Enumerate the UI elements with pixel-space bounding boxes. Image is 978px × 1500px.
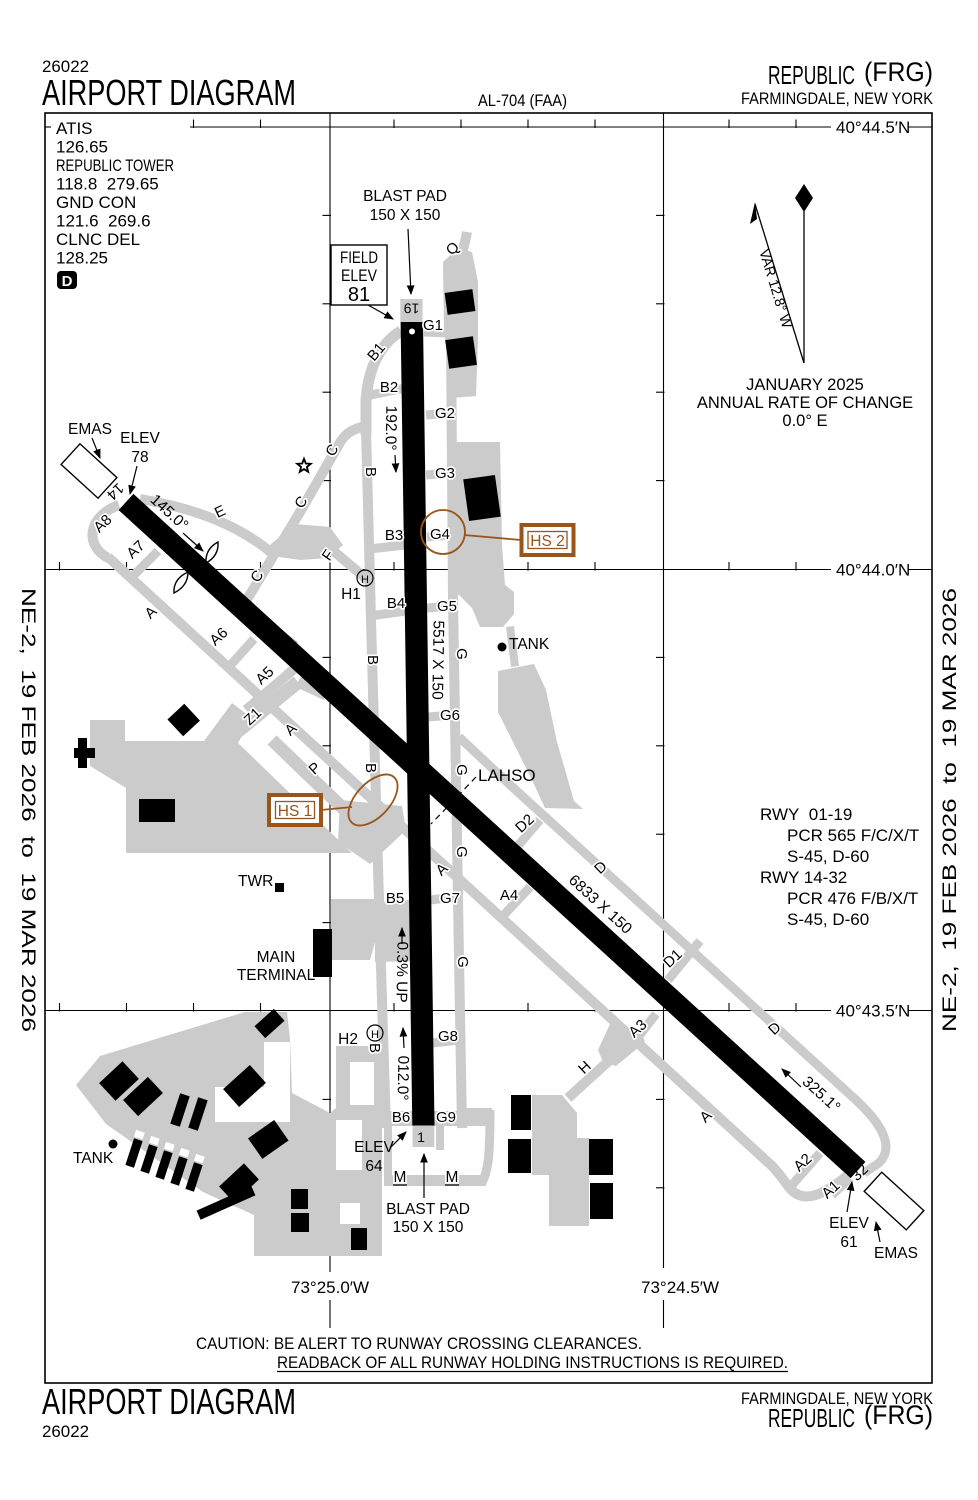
svg-text:H1: H1 <box>341 586 361 603</box>
svg-text:G: G <box>453 648 470 660</box>
svg-text:0.0° E: 0.0° E <box>782 412 827 430</box>
svg-text:G1: G1 <box>423 317 443 334</box>
svg-text:H: H <box>361 574 369 586</box>
svg-text:B: B <box>364 655 381 665</box>
svg-text:73°25.0′W: 73°25.0′W <box>291 1278 369 1297</box>
svg-text:B4: B4 <box>387 595 405 612</box>
svg-text:B: B <box>362 467 379 477</box>
svg-text:NE-2, 19 FEB 2026 to 19 MAR: NE-2, 19 FEB 2026 to 19 MAR 2026 <box>940 588 961 1032</box>
svg-text:150 X 150: 150 X 150 <box>370 207 441 224</box>
svg-text:ATIS: ATIS <box>56 119 93 138</box>
svg-text:G6: G6 <box>440 707 460 724</box>
svg-text:ELEV: ELEV <box>829 1215 869 1232</box>
svg-text:61: 61 <box>840 1234 857 1251</box>
svg-text:ANNUAL RATE OF CHANGE: ANNUAL RATE OF CHANGE <box>697 394 913 412</box>
svg-text:B2: B2 <box>380 379 398 396</box>
svg-text:NE-2, 19 FEB 2026 to 19 MAR: NE-2, 19 FEB 2026 to 19 MAR 2026 <box>17 588 38 1032</box>
svg-text:B3: B3 <box>385 527 403 544</box>
svg-text:(FRG): (FRG) <box>864 57 933 87</box>
svg-text:121.6 269.6: 121.6 269.6 <box>56 212 151 231</box>
svg-text:HS 1: HS 1 <box>278 803 312 820</box>
svg-text:G: G <box>453 846 470 858</box>
svg-text:REPUBLIC: REPUBLIC <box>768 1403 855 1433</box>
svg-text:B5: B5 <box>386 890 404 907</box>
svg-text:G4: G4 <box>430 526 450 543</box>
svg-text:FARMINGDALE, NEW YORK: FARMINGDALE, NEW YORK <box>741 89 934 108</box>
svg-text:A4: A4 <box>500 887 518 904</box>
svg-text:EMAS: EMAS <box>68 421 112 438</box>
svg-text:192.0°: 192.0° <box>382 405 400 450</box>
svg-text:40°43.5′N: 40°43.5′N <box>836 1002 910 1021</box>
svg-text:B: B <box>366 1043 383 1053</box>
svg-text:1: 1 <box>417 1129 425 1145</box>
svg-text:AL-704 (FAA): AL-704 (FAA) <box>478 91 567 110</box>
svg-text:H: H <box>371 1029 379 1041</box>
svg-text:READBACK OF ALL RUNWAY HOLDING: READBACK OF ALL RUNWAY HOLDING INSTRUCTI… <box>277 1353 788 1372</box>
svg-text:BLAST PAD: BLAST PAD <box>386 1201 470 1218</box>
svg-text:G7: G7 <box>440 890 460 907</box>
svg-text:G: G <box>453 764 470 776</box>
svg-text:ELEV: ELEV <box>120 430 160 447</box>
svg-text:LAHSO: LAHSO <box>478 766 536 785</box>
svg-text:CLNC DEL: CLNC DEL <box>56 230 140 249</box>
svg-text:TANK: TANK <box>73 1150 114 1167</box>
svg-text:S-45, D-60: S-45, D-60 <box>787 847 869 866</box>
svg-text:JANUARY 2025: JANUARY 2025 <box>746 376 864 394</box>
svg-text:G2: G2 <box>435 405 455 422</box>
svg-text:EMAS: EMAS <box>874 1245 918 1262</box>
svg-text:G: G <box>454 956 471 968</box>
svg-text:AIRPORT DIAGRAM: AIRPORT DIAGRAM <box>42 72 296 113</box>
svg-text:MAIN: MAIN <box>257 949 296 966</box>
svg-text:AIRPORT DIAGRAM: AIRPORT DIAGRAM <box>42 1381 296 1422</box>
svg-text:40°44.0′N: 40°44.0′N <box>836 561 910 580</box>
svg-text:G8: G8 <box>438 1028 458 1045</box>
svg-text:78: 78 <box>131 449 148 466</box>
svg-text:64: 64 <box>365 1158 383 1175</box>
svg-text:G9: G9 <box>436 1109 456 1126</box>
svg-text:FIELD: FIELD <box>340 249 378 267</box>
svg-text:H2: H2 <box>338 1031 358 1048</box>
svg-text:118.8 279.65: 118.8 279.65 <box>56 175 159 194</box>
svg-text:M: M <box>394 1169 407 1186</box>
svg-text:0.3% UP: 0.3% UP <box>393 941 411 1002</box>
svg-text:5517 X 150: 5517 X 150 <box>428 620 446 700</box>
svg-text:PCR 476 F/B/X/T: PCR 476 F/B/X/T <box>787 889 918 908</box>
svg-text:D: D <box>62 273 73 290</box>
svg-text:26022: 26022 <box>42 1422 89 1441</box>
svg-text:40°44.5′N: 40°44.5′N <box>836 118 910 137</box>
svg-text:RWY 01-19: RWY 01-19 <box>760 805 852 824</box>
svg-text:RWY 14-32: RWY 14-32 <box>760 868 847 887</box>
svg-text:PCR 565 F/C/X/T: PCR 565 F/C/X/T <box>787 826 919 845</box>
svg-text:G3: G3 <box>435 465 455 482</box>
svg-text:ELEV: ELEV <box>341 267 377 285</box>
svg-text:B: B <box>362 763 379 773</box>
svg-text:G5: G5 <box>437 598 457 615</box>
svg-text:B6: B6 <box>392 1109 410 1126</box>
svg-text:126.65: 126.65 <box>56 138 108 157</box>
svg-text:REPUBLIC: REPUBLIC <box>768 60 855 90</box>
svg-text:ELEV: ELEV <box>354 1139 394 1156</box>
svg-text:73°24.5′W: 73°24.5′W <box>641 1278 719 1297</box>
svg-text:HS 2: HS 2 <box>530 533 564 550</box>
svg-text:TERMINAL: TERMINAL <box>237 967 316 984</box>
svg-text:GND CON: GND CON <box>56 193 136 212</box>
svg-text:S-45, D-60: S-45, D-60 <box>787 910 869 929</box>
svg-text:128.25: 128.25 <box>56 249 108 268</box>
svg-text:150 X 150: 150 X 150 <box>393 1219 464 1236</box>
svg-text:REPUBLIC TOWER: REPUBLIC TOWER <box>56 156 174 175</box>
svg-text:19: 19 <box>403 300 419 316</box>
svg-text:M: M <box>446 1169 459 1186</box>
svg-text:81: 81 <box>348 284 370 306</box>
svg-text:TWR: TWR <box>238 873 273 890</box>
svg-text:BLAST PAD: BLAST PAD <box>363 188 447 205</box>
svg-text:CAUTION: BE ALERT TO RUNWAY CR: CAUTION: BE ALERT TO RUNWAY CROSSING CLE… <box>196 1334 642 1353</box>
svg-text:(FRG): (FRG) <box>864 1400 933 1430</box>
svg-text:012.0°: 012.0° <box>394 1055 412 1100</box>
svg-text:TANK: TANK <box>509 636 550 653</box>
